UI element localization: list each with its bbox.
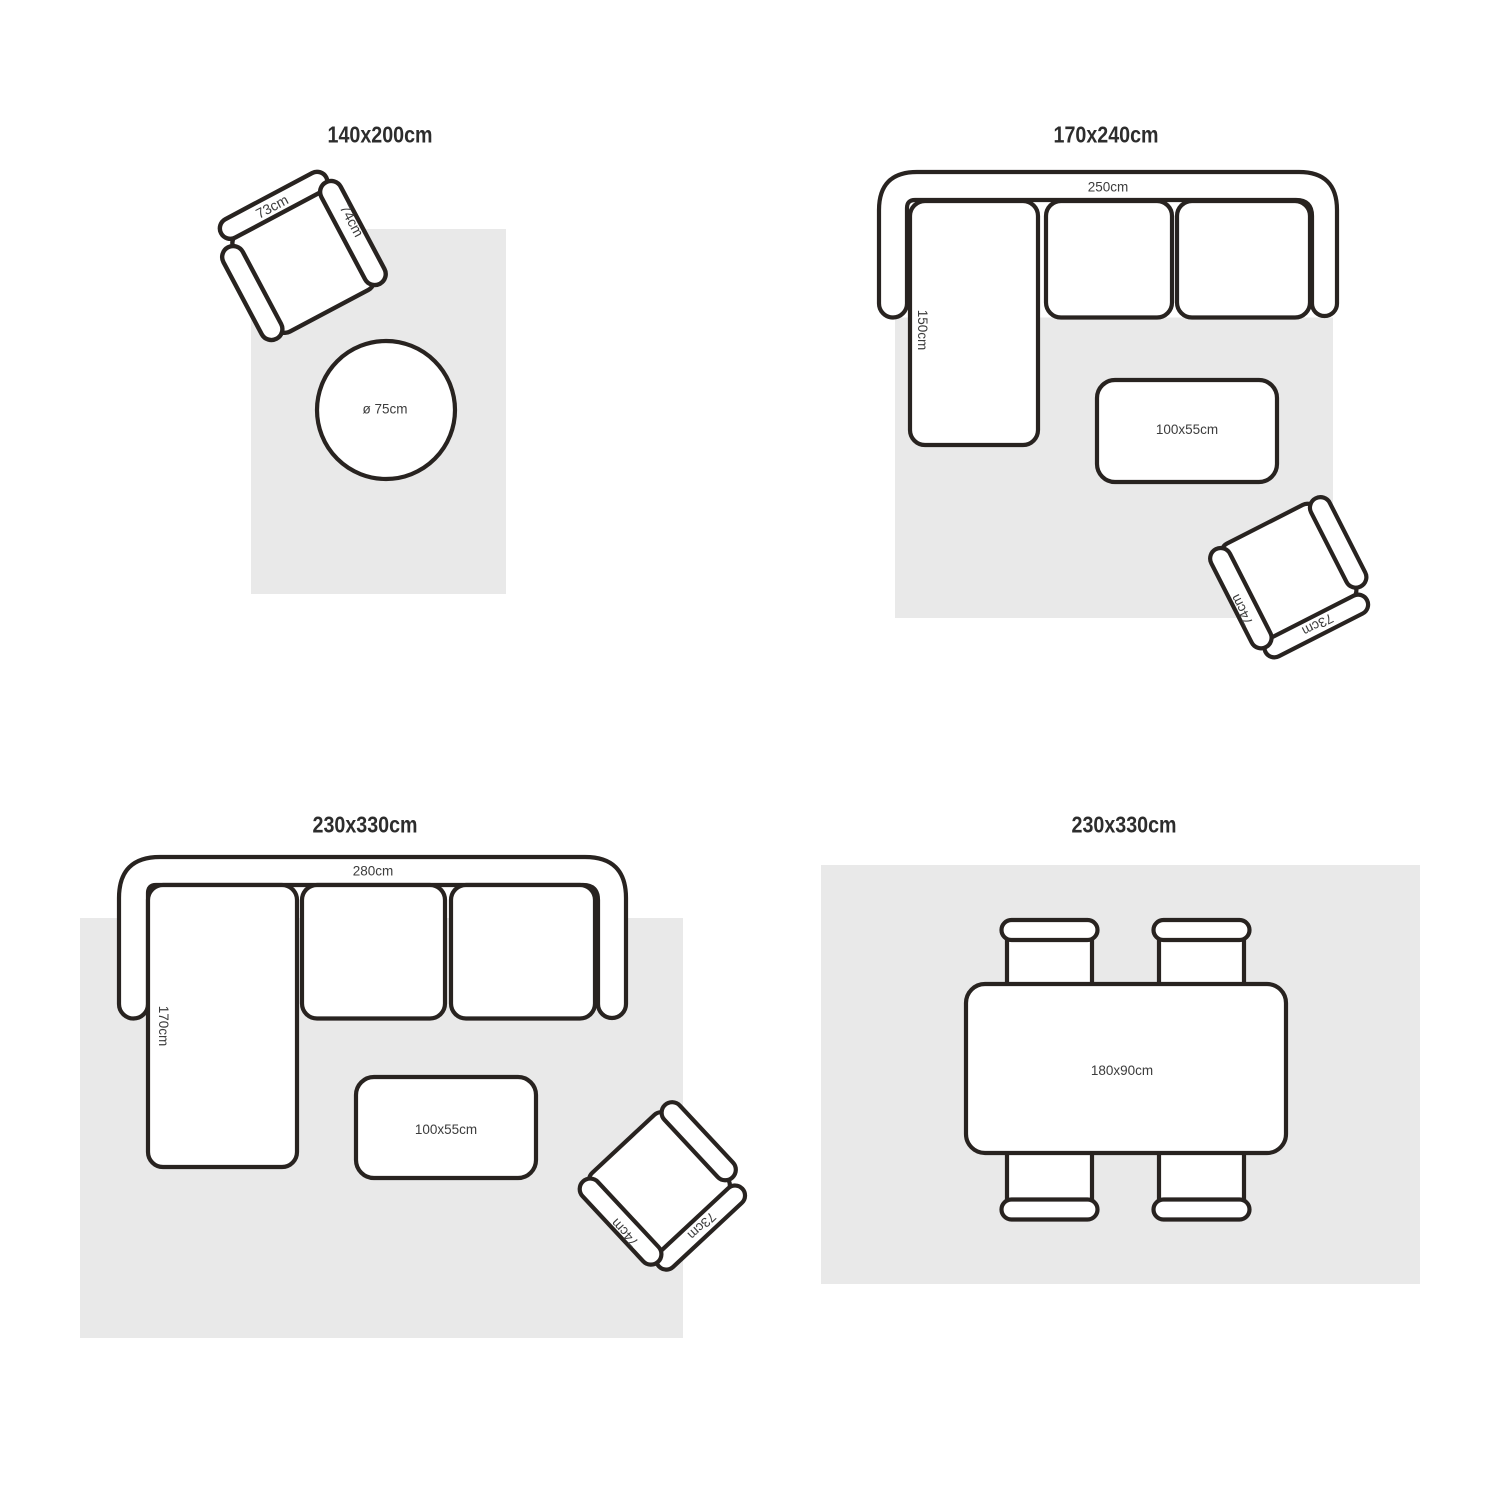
svg-text:230x330cm: 230x330cm [1072, 812, 1177, 838]
svg-text:230x330cm: 230x330cm [313, 812, 418, 838]
svg-text:280cm: 280cm [353, 864, 394, 879]
svg-text:250cm: 250cm [1088, 180, 1129, 195]
svg-text:180x90cm: 180x90cm [1091, 1063, 1153, 1078]
svg-text:170x240cm: 170x240cm [1054, 122, 1159, 148]
svg-text:170cm: 170cm [156, 1006, 171, 1047]
svg-text:100x55cm: 100x55cm [415, 1122, 477, 1137]
svg-text:150cm: 150cm [915, 310, 930, 351]
svg-text:ø 75cm: ø 75cm [362, 402, 407, 417]
svg-text:140x200cm: 140x200cm [328, 122, 433, 148]
svg-text:100x55cm: 100x55cm [1156, 422, 1218, 437]
